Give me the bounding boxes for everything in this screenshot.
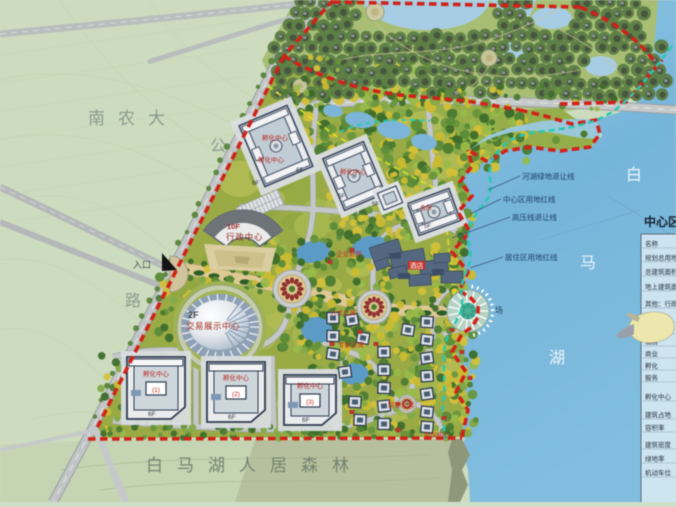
svg-text:马: 马 <box>580 254 596 272</box>
svg-text:白马湖人居森林: 白马湖人居森林 <box>146 456 363 475</box>
svg-text:孵化: 孵化 <box>645 361 659 370</box>
svg-text:其他：行政: 其他：行政 <box>645 299 676 308</box>
svg-text:湖: 湖 <box>549 349 565 367</box>
svg-text:酒店: 酒店 <box>410 261 424 270</box>
svg-text:服务: 服务 <box>645 373 659 382</box>
svg-text:6F: 6F <box>148 411 156 418</box>
svg-text:(3): (3) <box>306 399 314 406</box>
svg-text:孵化中心: 孵化中心 <box>262 133 289 142</box>
svg-text:白: 白 <box>626 166 642 184</box>
svg-text:专家公寓: 专家公寓 <box>338 340 364 349</box>
svg-text:5F: 5F <box>372 202 379 208</box>
svg-text:6F: 6F <box>296 168 303 174</box>
svg-text:6F: 6F <box>252 181 259 187</box>
svg-text:会议中心: 会议中心 <box>424 430 451 439</box>
svg-text:孵化中心: 孵化中心 <box>143 369 170 378</box>
svg-text:入口: 入口 <box>133 260 151 270</box>
svg-text:5F: 5F <box>424 224 431 230</box>
svg-text:中心区: 中心区 <box>644 214 676 229</box>
svg-text:6F: 6F <box>302 417 310 424</box>
svg-text:建筑占地: 建筑占地 <box>645 410 672 419</box>
svg-text:(2): (2) <box>232 391 240 398</box>
svg-text:公: 公 <box>210 138 226 155</box>
svg-text:6F: 6F <box>228 414 236 421</box>
svg-text:规划总用地: 规划总用地 <box>645 253 676 262</box>
svg-text:孵化中心: 孵化中心 <box>258 155 285 164</box>
svg-text:南农大: 南农大 <box>88 109 178 128</box>
svg-text:容积率: 容积率 <box>645 423 665 432</box>
svg-text:建筑密度: 建筑密度 <box>645 440 672 449</box>
svg-text:机动车位: 机动车位 <box>645 468 672 477</box>
svg-text:绿地率: 绿地率 <box>645 454 665 463</box>
svg-text:居住区用地红线: 居住区用地红线 <box>505 252 558 262</box>
svg-text:河湖绿地退让线: 河湖绿地退让线 <box>522 171 575 181</box>
svg-text:名称: 名称 <box>645 239 659 248</box>
svg-text:孵化中心: 孵化中心 <box>340 167 367 176</box>
svg-text:会所: 会所 <box>420 204 432 212</box>
svg-text:场: 场 <box>495 306 503 315</box>
svg-text:孵化中心: 孵化中心 <box>223 373 250 382</box>
svg-text:(1): (1) <box>152 387 160 394</box>
svg-text:2F: 2F <box>188 310 199 320</box>
svg-text:行政中心: 行政中心 <box>226 232 263 242</box>
svg-text:企业会所: 企业会所 <box>336 249 363 258</box>
svg-text:孵化中心: 孵化中心 <box>297 381 324 390</box>
svg-text:孵化中心: 孵化中心 <box>645 392 672 401</box>
svg-text:高压线退让线: 高压线退让线 <box>512 212 557 222</box>
svg-text:5F: 5F <box>338 194 345 200</box>
svg-text:中心区用地红线: 中心区用地红线 <box>503 194 556 204</box>
svg-text:人才公寓: 人才公寓 <box>330 308 356 317</box>
svg-text:交易展示中心: 交易展示中心 <box>186 321 240 331</box>
svg-text:商业: 商业 <box>645 349 659 358</box>
svg-text:总建筑面积: 总建筑面积 <box>645 267 676 276</box>
svg-text:路: 路 <box>125 292 141 310</box>
svg-text:院士公寓: 院士公寓 <box>388 400 414 409</box>
svg-text:地上建筑面积: 地上建筑面积 <box>645 282 676 291</box>
svg-text:10F: 10F <box>227 222 240 231</box>
